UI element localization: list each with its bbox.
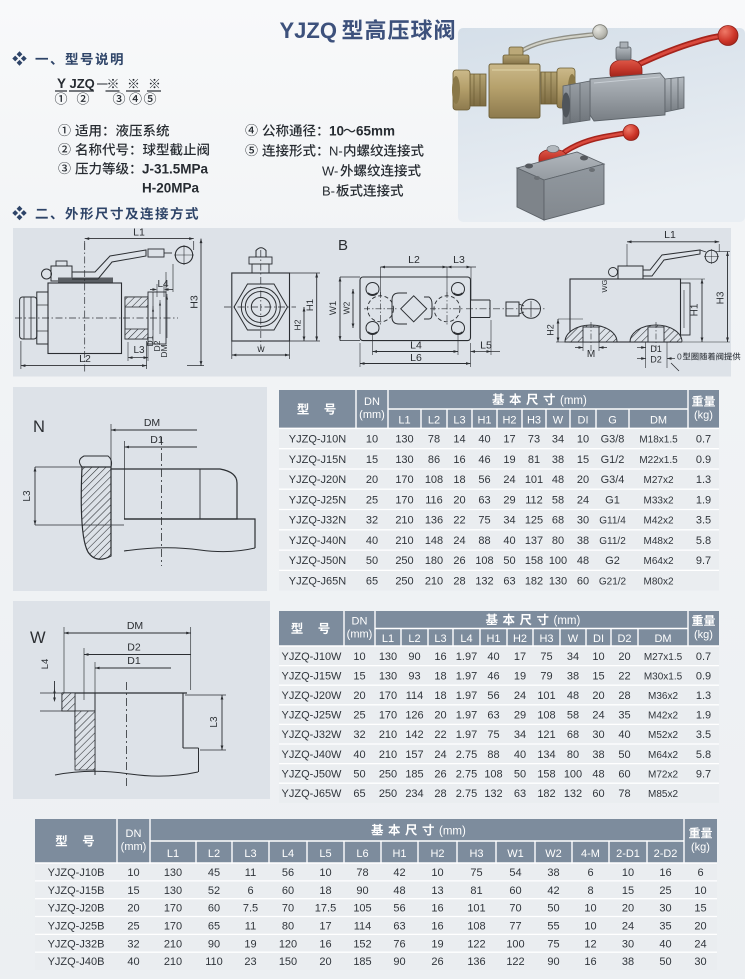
svg-text:116: 116 [425, 494, 443, 506]
svg-text:(kg): (kg) [694, 410, 713, 422]
svg-text:D2: D2 [127, 642, 141, 654]
svg-text:H2: H2 [546, 324, 556, 336]
svg-text:15: 15 [353, 670, 365, 682]
svg-text:YJZQ-J50N: YJZQ-J50N [289, 555, 347, 567]
svg-text:18: 18 [434, 670, 446, 682]
svg-text:101: 101 [525, 474, 543, 486]
svg-text:60: 60 [282, 885, 294, 897]
svg-text:17: 17 [319, 921, 331, 933]
svg-text:DM: DM [654, 633, 671, 645]
svg-text:8: 8 [587, 885, 593, 897]
svg-text:78: 78 [618, 788, 630, 800]
svg-text:105: 105 [353, 903, 371, 915]
svg-text:15: 15 [577, 454, 589, 466]
svg-text:52: 52 [208, 885, 220, 897]
svg-text:W: W [568, 633, 579, 645]
svg-text:W2: W2 [342, 301, 352, 314]
svg-text:158: 158 [537, 768, 555, 780]
svg-text:100: 100 [506, 938, 524, 950]
svg-text:L2: L2 [408, 633, 420, 645]
svg-text:1.97: 1.97 [456, 651, 477, 663]
svg-text:w: w [256, 344, 265, 355]
svg-text:YJZQ-J40B: YJZQ-J40B [48, 956, 105, 968]
svg-text:H3: H3 [539, 633, 553, 645]
svg-text:24: 24 [514, 690, 526, 702]
svg-text:G11/4: G11/4 [599, 516, 626, 527]
svg-text:60: 60 [509, 885, 521, 897]
svg-text:16: 16 [584, 956, 596, 968]
svg-text:50: 50 [618, 749, 630, 761]
svg-text:11: 11 [245, 867, 256, 879]
svg-text:L2: L2 [79, 353, 91, 365]
svg-text:24: 24 [453, 535, 465, 547]
svg-text:20: 20 [434, 710, 446, 722]
svg-text:14: 14 [453, 434, 465, 446]
svg-text:—: — [97, 78, 108, 90]
svg-text:H2: H2 [430, 848, 444, 860]
svg-text:YJZQ-J20N: YJZQ-J20N [289, 474, 347, 486]
svg-text:10: 10 [592, 651, 604, 663]
svg-text:130: 130 [395, 454, 413, 466]
svg-text:G2: G2 [605, 555, 620, 567]
svg-text:19: 19 [503, 454, 515, 466]
svg-text:M27x1.5: M27x1.5 [644, 652, 683, 663]
svg-text:11: 11 [245, 921, 256, 933]
svg-text:20: 20 [127, 903, 139, 915]
svg-text:76: 76 [393, 938, 405, 950]
svg-text:YJZQ-J25B: YJZQ-J25B [48, 921, 105, 933]
svg-text:15: 15 [127, 885, 139, 897]
svg-text:3.5: 3.5 [696, 729, 711, 741]
svg-text:L4: L4 [157, 279, 169, 290]
svg-text:10: 10 [622, 867, 634, 879]
svg-text:48: 48 [577, 555, 589, 567]
svg-text:16: 16 [431, 921, 443, 933]
svg-text:L1: L1 [133, 227, 145, 239]
svg-text:130: 130 [164, 867, 182, 879]
svg-text:YJZQ: YJZQ [280, 18, 337, 43]
svg-text:L2: L2 [208, 848, 220, 860]
svg-text:L4: L4 [460, 633, 472, 645]
svg-text:16: 16 [319, 938, 331, 950]
svg-text:130: 130 [395, 434, 413, 446]
svg-text:170: 170 [395, 474, 413, 486]
svg-text:G: G [608, 415, 617, 427]
svg-text:38: 38 [592, 749, 604, 761]
svg-text:56: 56 [478, 474, 490, 486]
svg-text:68: 68 [567, 729, 579, 741]
svg-text:DI: DI [578, 415, 589, 427]
svg-text:77: 77 [509, 921, 521, 933]
svg-text:10: 10 [127, 867, 139, 879]
svg-text:(mm): (mm) [439, 826, 466, 838]
svg-text:35: 35 [618, 710, 630, 722]
svg-text:20: 20 [618, 651, 630, 663]
svg-text:H2: H2 [502, 415, 516, 427]
svg-text:114: 114 [354, 921, 372, 933]
svg-text:DM: DM [127, 620, 143, 632]
svg-text:26: 26 [434, 768, 446, 780]
svg-text:L4: L4 [282, 848, 294, 860]
svg-text:H1: H1 [305, 299, 316, 311]
svg-text:W: W [30, 629, 46, 647]
svg-text:6: 6 [247, 885, 253, 897]
svg-text:YJZQ-J10N: YJZQ-J10N [289, 434, 347, 446]
svg-text:17.5: 17.5 [315, 903, 336, 915]
svg-text:108: 108 [475, 555, 493, 567]
svg-text:L3: L3 [453, 254, 465, 266]
svg-text:25: 25 [659, 885, 671, 897]
svg-text:86: 86 [428, 454, 440, 466]
svg-text:65: 65 [208, 921, 220, 933]
svg-text:180: 180 [425, 555, 443, 567]
svg-text:M22x1.5: M22x1.5 [639, 455, 678, 466]
svg-text:40: 40 [514, 749, 526, 761]
svg-text:63: 63 [514, 788, 526, 800]
svg-text:157: 157 [405, 749, 423, 761]
svg-text:D1: D1 [150, 434, 164, 446]
svg-text:81: 81 [470, 885, 482, 897]
svg-text:48: 48 [552, 474, 564, 486]
svg-text:YJZQ-J15B: YJZQ-J15B [48, 885, 105, 897]
svg-text:D2: D2 [617, 633, 631, 645]
svg-text:148: 148 [425, 535, 443, 547]
svg-text:W1: W1 [328, 301, 339, 315]
svg-text:L3: L3 [209, 716, 220, 728]
svg-text:24: 24 [694, 938, 706, 950]
svg-text:DM: DM [650, 415, 667, 427]
svg-text:YJZQ-J15N: YJZQ-J15N [289, 454, 347, 466]
svg-text:W: W [553, 415, 564, 427]
svg-text:79: 79 [540, 670, 552, 682]
svg-text:70: 70 [509, 903, 521, 915]
svg-text:G21/2: G21/2 [599, 577, 627, 588]
svg-text:122: 122 [467, 938, 485, 950]
svg-text:17: 17 [503, 434, 515, 446]
svg-text:34: 34 [552, 434, 564, 446]
svg-text:H1: H1 [486, 633, 500, 645]
svg-text:YJZQ-J25N: YJZQ-J25N [289, 494, 347, 506]
svg-text:80: 80 [282, 921, 294, 933]
svg-text:130: 130 [549, 576, 567, 588]
svg-text:40: 40 [618, 729, 630, 741]
svg-text:90: 90 [393, 956, 405, 968]
svg-text:M: M [587, 349, 595, 360]
svg-text:(kg): (kg) [694, 629, 713, 641]
svg-text:1.97: 1.97 [456, 710, 477, 722]
svg-text:B: B [338, 237, 348, 254]
svg-text:210: 210 [379, 729, 397, 741]
svg-text:YJZQ-J50W: YJZQ-J50W [282, 768, 343, 780]
svg-text:81: 81 [528, 454, 540, 466]
svg-text:210: 210 [379, 749, 397, 761]
svg-text:158: 158 [525, 555, 543, 567]
svg-text:132: 132 [475, 576, 493, 588]
svg-text:W-: W- [322, 164, 338, 179]
svg-text:25: 25 [353, 710, 365, 722]
svg-text:1.97: 1.97 [456, 729, 477, 741]
svg-text:L2: L2 [428, 415, 440, 427]
svg-text:50: 50 [659, 956, 671, 968]
svg-text:9.7: 9.7 [696, 555, 711, 567]
svg-text:17: 17 [514, 651, 526, 663]
svg-text:W2: W2 [545, 848, 562, 860]
svg-text:56: 56 [487, 690, 499, 702]
svg-text:22: 22 [453, 515, 465, 527]
svg-text:78: 78 [356, 867, 368, 879]
svg-text:L1: L1 [398, 415, 410, 427]
svg-text:L3: L3 [453, 415, 465, 427]
svg-text:H2: H2 [293, 319, 303, 330]
svg-text:100: 100 [549, 555, 567, 567]
svg-text:250: 250 [395, 555, 413, 567]
svg-text:56: 56 [393, 903, 405, 915]
svg-text:19: 19 [244, 938, 256, 950]
svg-text:134: 134 [537, 749, 555, 761]
svg-text:170: 170 [395, 494, 413, 506]
svg-text:78: 78 [428, 434, 440, 446]
svg-text:L1: L1 [167, 848, 179, 860]
svg-text:DM: DM [144, 417, 160, 429]
svg-text:YJZQ-J20B: YJZQ-J20B [48, 903, 105, 915]
svg-text:28: 28 [453, 576, 465, 588]
svg-text:YJZQ-J65W: YJZQ-J65W [282, 788, 343, 800]
svg-text:DN: DN [364, 396, 380, 408]
svg-text:42: 42 [393, 867, 405, 879]
svg-text:136: 136 [425, 515, 443, 527]
svg-text:58: 58 [552, 494, 564, 506]
svg-text:19: 19 [431, 938, 443, 950]
svg-text:120: 120 [279, 938, 297, 950]
svg-text:132: 132 [564, 788, 582, 800]
svg-text:(mm): (mm) [121, 841, 147, 853]
svg-text:73: 73 [528, 434, 540, 446]
svg-text:B-: B- [322, 184, 335, 199]
svg-text:112: 112 [525, 494, 543, 506]
svg-text:L1: L1 [382, 633, 394, 645]
svg-text:150: 150 [279, 956, 297, 968]
svg-text:40: 40 [659, 938, 671, 950]
svg-text:(mm): (mm) [347, 629, 373, 641]
svg-text:30: 30 [659, 903, 671, 915]
svg-text:20: 20 [622, 903, 634, 915]
svg-text:34: 34 [514, 729, 526, 741]
svg-text:136: 136 [467, 956, 485, 968]
svg-text:63: 63 [487, 710, 499, 722]
svg-text:18: 18 [434, 690, 446, 702]
svg-text:50: 50 [514, 768, 526, 780]
svg-text:40: 40 [353, 749, 365, 761]
svg-text:30: 30 [694, 956, 706, 968]
svg-text:40: 40 [503, 535, 515, 547]
svg-text:H3: H3 [189, 295, 201, 309]
svg-text:88: 88 [487, 749, 499, 761]
svg-text:5.8: 5.8 [696, 535, 711, 547]
svg-text:93: 93 [408, 670, 420, 682]
svg-text:24: 24 [503, 474, 515, 486]
svg-text:32: 32 [366, 515, 378, 527]
svg-text:20: 20 [319, 956, 331, 968]
svg-text:YJZQ-J32W: YJZQ-J32W [282, 729, 343, 741]
svg-text:L5: L5 [480, 340, 492, 352]
svg-text:YJZQ-J10B: YJZQ-J10B [48, 867, 105, 879]
svg-text:WG: WG [600, 279, 609, 292]
svg-text:63: 63 [393, 921, 405, 933]
svg-text:(kg): (kg) [691, 842, 710, 854]
svg-text:35: 35 [659, 921, 671, 933]
svg-text:DN: DN [352, 616, 368, 628]
svg-text:75: 75 [547, 938, 559, 950]
svg-text:38: 38 [622, 956, 634, 968]
svg-text:H-20MPa: H-20MPa [142, 181, 200, 196]
svg-text:G1: G1 [605, 494, 620, 506]
svg-text:65: 65 [366, 576, 378, 588]
svg-text:170: 170 [379, 690, 397, 702]
svg-text:24: 24 [622, 921, 634, 933]
svg-text:YJZQ-J10W: YJZQ-J10W [282, 651, 343, 663]
svg-text:6: 6 [587, 867, 593, 879]
svg-text:23: 23 [244, 956, 256, 968]
svg-text:63: 63 [478, 494, 490, 506]
svg-text:20: 20 [366, 474, 378, 486]
svg-text:48: 48 [592, 768, 604, 780]
svg-text:19: 19 [514, 670, 526, 682]
svg-text:M72x2: M72x2 [648, 769, 678, 780]
svg-text:16: 16 [434, 651, 446, 663]
svg-text:H1: H1 [690, 303, 701, 316]
svg-text:G3/8: G3/8 [601, 434, 625, 446]
svg-text:15: 15 [366, 454, 378, 466]
svg-text:2.75: 2.75 [456, 749, 477, 761]
svg-text:10: 10 [366, 434, 378, 446]
svg-text:2-D1: 2-D1 [616, 848, 640, 860]
svg-text:20: 20 [694, 921, 706, 933]
svg-text:250: 250 [379, 788, 397, 800]
svg-text:N-: N- [329, 144, 343, 159]
svg-text:210: 210 [395, 515, 413, 527]
svg-text:22: 22 [434, 729, 446, 741]
svg-text:10: 10 [319, 867, 331, 879]
svg-text:M85x2: M85x2 [648, 789, 678, 800]
svg-text:10: 10 [329, 124, 344, 139]
svg-text:101: 101 [537, 690, 555, 702]
svg-text:38: 38 [552, 454, 564, 466]
svg-text:130: 130 [379, 670, 397, 682]
svg-text:125: 125 [525, 515, 543, 527]
svg-text:26: 26 [431, 956, 443, 968]
svg-text:6: 6 [697, 867, 703, 879]
svg-text:46: 46 [478, 454, 490, 466]
svg-text:210: 210 [395, 535, 413, 547]
svg-text:38: 38 [547, 867, 559, 879]
svg-text:M64x2: M64x2 [643, 556, 673, 567]
svg-text:3.5: 3.5 [696, 515, 711, 527]
svg-text:48: 48 [567, 690, 579, 702]
svg-text:50: 50 [547, 903, 559, 915]
svg-text:45: 45 [208, 867, 220, 879]
svg-text:170: 170 [164, 921, 182, 933]
svg-text:29: 29 [503, 494, 515, 506]
svg-text:2-D2: 2-D2 [654, 848, 678, 860]
svg-text:250: 250 [379, 768, 397, 780]
svg-text:L2: L2 [408, 254, 420, 266]
svg-text:40: 40 [127, 956, 139, 968]
svg-text:170: 170 [379, 710, 397, 722]
svg-text:50: 50 [353, 768, 365, 780]
svg-text:65mm: 65mm [356, 124, 395, 139]
svg-text:114: 114 [406, 690, 424, 702]
svg-text:210: 210 [425, 576, 443, 588]
svg-text:108: 108 [484, 768, 502, 780]
svg-text:(mm): (mm) [560, 395, 587, 407]
svg-text:34: 34 [503, 515, 515, 527]
svg-text:58: 58 [567, 710, 579, 722]
svg-text:10: 10 [577, 434, 589, 446]
svg-text:40: 40 [487, 651, 499, 663]
svg-text:N: N [33, 418, 45, 436]
svg-text:70: 70 [282, 903, 294, 915]
svg-text:20: 20 [577, 474, 589, 486]
svg-text:2.75: 2.75 [456, 788, 477, 800]
svg-text:54: 54 [509, 867, 521, 879]
svg-text:YJZQ-J32N: YJZQ-J32N [289, 515, 347, 527]
svg-text:75: 75 [487, 729, 499, 741]
svg-text:10: 10 [584, 903, 596, 915]
svg-text:30: 30 [577, 515, 589, 527]
svg-text:M42x2: M42x2 [643, 516, 673, 527]
svg-text:15: 15 [592, 670, 604, 682]
svg-text:34: 34 [567, 651, 579, 663]
svg-text:L3: L3 [22, 490, 33, 502]
svg-text:48: 48 [393, 885, 405, 897]
svg-text:60: 60 [592, 788, 604, 800]
svg-text:137: 137 [525, 535, 543, 547]
svg-text:4-M: 4-M [581, 848, 600, 860]
svg-text:55: 55 [547, 921, 559, 933]
svg-text:13: 13 [431, 885, 443, 897]
svg-text:42: 42 [547, 885, 559, 897]
svg-text:YJZQ-J15W: YJZQ-J15W [282, 670, 343, 682]
svg-text:1.3: 1.3 [696, 474, 711, 486]
svg-text:234: 234 [405, 788, 423, 800]
svg-text:130: 130 [379, 651, 397, 663]
svg-text:H1: H1 [477, 415, 491, 427]
svg-text:M48x2: M48x2 [643, 536, 673, 547]
svg-text:18: 18 [319, 885, 331, 897]
svg-text:142: 142 [405, 729, 423, 741]
svg-text:W1: W1 [507, 848, 524, 860]
svg-text:YJZQ-J25W: YJZQ-J25W [282, 710, 343, 722]
svg-text:0: 0 [677, 352, 682, 362]
svg-text:15: 15 [694, 903, 706, 915]
svg-text:H2: H2 [513, 633, 527, 645]
svg-text:L3: L3 [133, 345, 145, 356]
svg-text:25: 25 [366, 494, 378, 506]
svg-text:1.9: 1.9 [696, 494, 711, 506]
svg-text:DN: DN [126, 828, 142, 840]
svg-text:101: 101 [467, 903, 485, 915]
svg-text:YJZQ-J20W: YJZQ-J20W [282, 690, 343, 702]
svg-text:M33x2: M33x2 [643, 495, 673, 506]
svg-text:18: 18 [453, 474, 465, 486]
svg-text:L4: L4 [410, 340, 422, 352]
svg-text:250: 250 [395, 576, 413, 588]
svg-text:60: 60 [577, 576, 589, 588]
svg-text:1.9: 1.9 [696, 710, 711, 722]
svg-text:M36x2: M36x2 [648, 691, 678, 702]
svg-text:210: 210 [164, 938, 182, 950]
svg-text:110: 110 [205, 956, 223, 968]
